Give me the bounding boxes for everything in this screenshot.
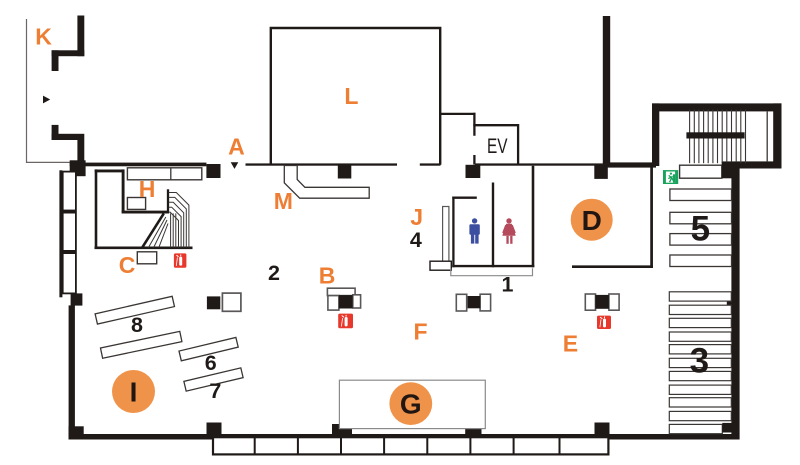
svg-text:A: A: [228, 133, 245, 159]
svg-text:H: H: [139, 176, 156, 202]
svg-text:1: 1: [502, 272, 514, 296]
svg-text:F: F: [413, 318, 427, 344]
svg-text:I: I: [130, 377, 138, 408]
svg-text:5: 5: [691, 210, 710, 249]
svg-text:7: 7: [209, 379, 221, 403]
svg-text:4: 4: [410, 228, 422, 252]
svg-text:D: D: [582, 205, 602, 236]
svg-text:E: E: [563, 330, 578, 356]
svg-text:L: L: [344, 83, 358, 109]
svg-text:G: G: [400, 389, 422, 420]
svg-text:C: C: [119, 252, 136, 278]
svg-text:8: 8: [131, 313, 143, 337]
svg-text:B: B: [319, 262, 336, 288]
svg-text:3: 3: [690, 342, 709, 381]
svg-text:M: M: [274, 188, 293, 214]
svg-text:K: K: [35, 24, 52, 50]
svg-text:EV: EV: [487, 135, 508, 158]
svg-text:2: 2: [268, 261, 280, 285]
svg-text:6: 6: [205, 351, 217, 375]
svg-text:J: J: [410, 204, 423, 230]
